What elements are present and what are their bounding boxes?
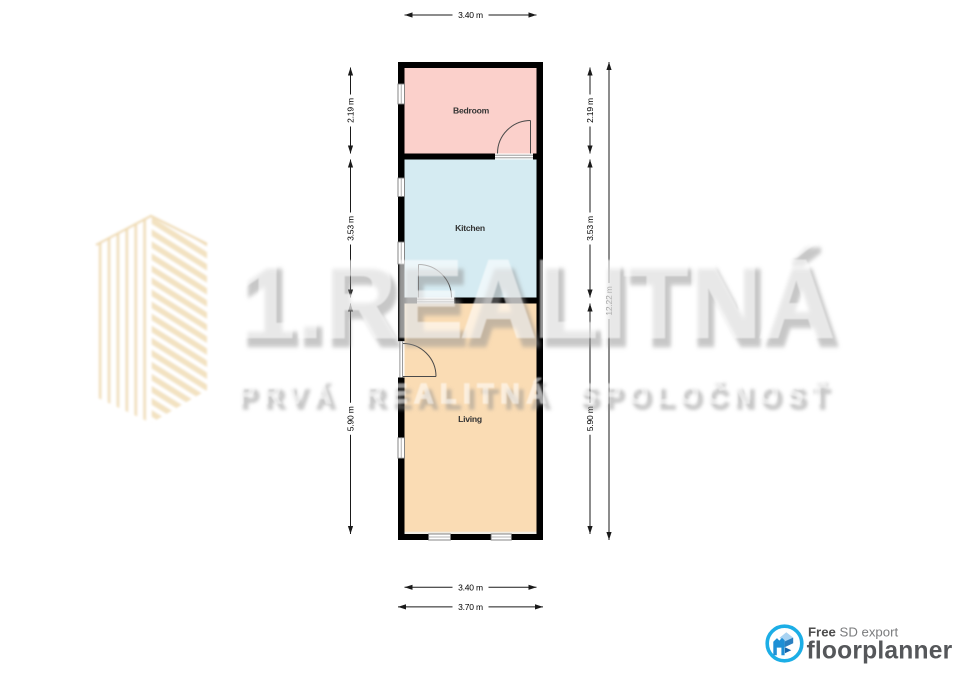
svg-text:floorplanner: floorplanner <box>807 638 953 665</box>
svg-text:Kitchen: Kitchen <box>455 223 485 233</box>
svg-text:3.53 m: 3.53 m <box>346 216 356 241</box>
svg-text:3.53 m: 3.53 m <box>585 216 595 241</box>
svg-text:3.70 m: 3.70 m <box>458 602 483 612</box>
svg-text:3.40 m: 3.40 m <box>458 583 483 593</box>
svg-text:3.40 m: 3.40 m <box>458 10 483 20</box>
svg-text:2.19 m: 2.19 m <box>346 98 356 123</box>
svg-text:2.19 m: 2.19 m <box>585 98 595 123</box>
svg-text:Bedroom: Bedroom <box>453 106 490 116</box>
svg-text:Living: Living <box>458 414 482 424</box>
svg-text:PRVÁ REALITNÁ SPOLOČNOSŤ: PRVÁ REALITNÁ SPOLOČNOSŤ <box>237 376 833 409</box>
svg-text:1.REALITNÁ: 1.REALITNÁ <box>237 238 833 359</box>
